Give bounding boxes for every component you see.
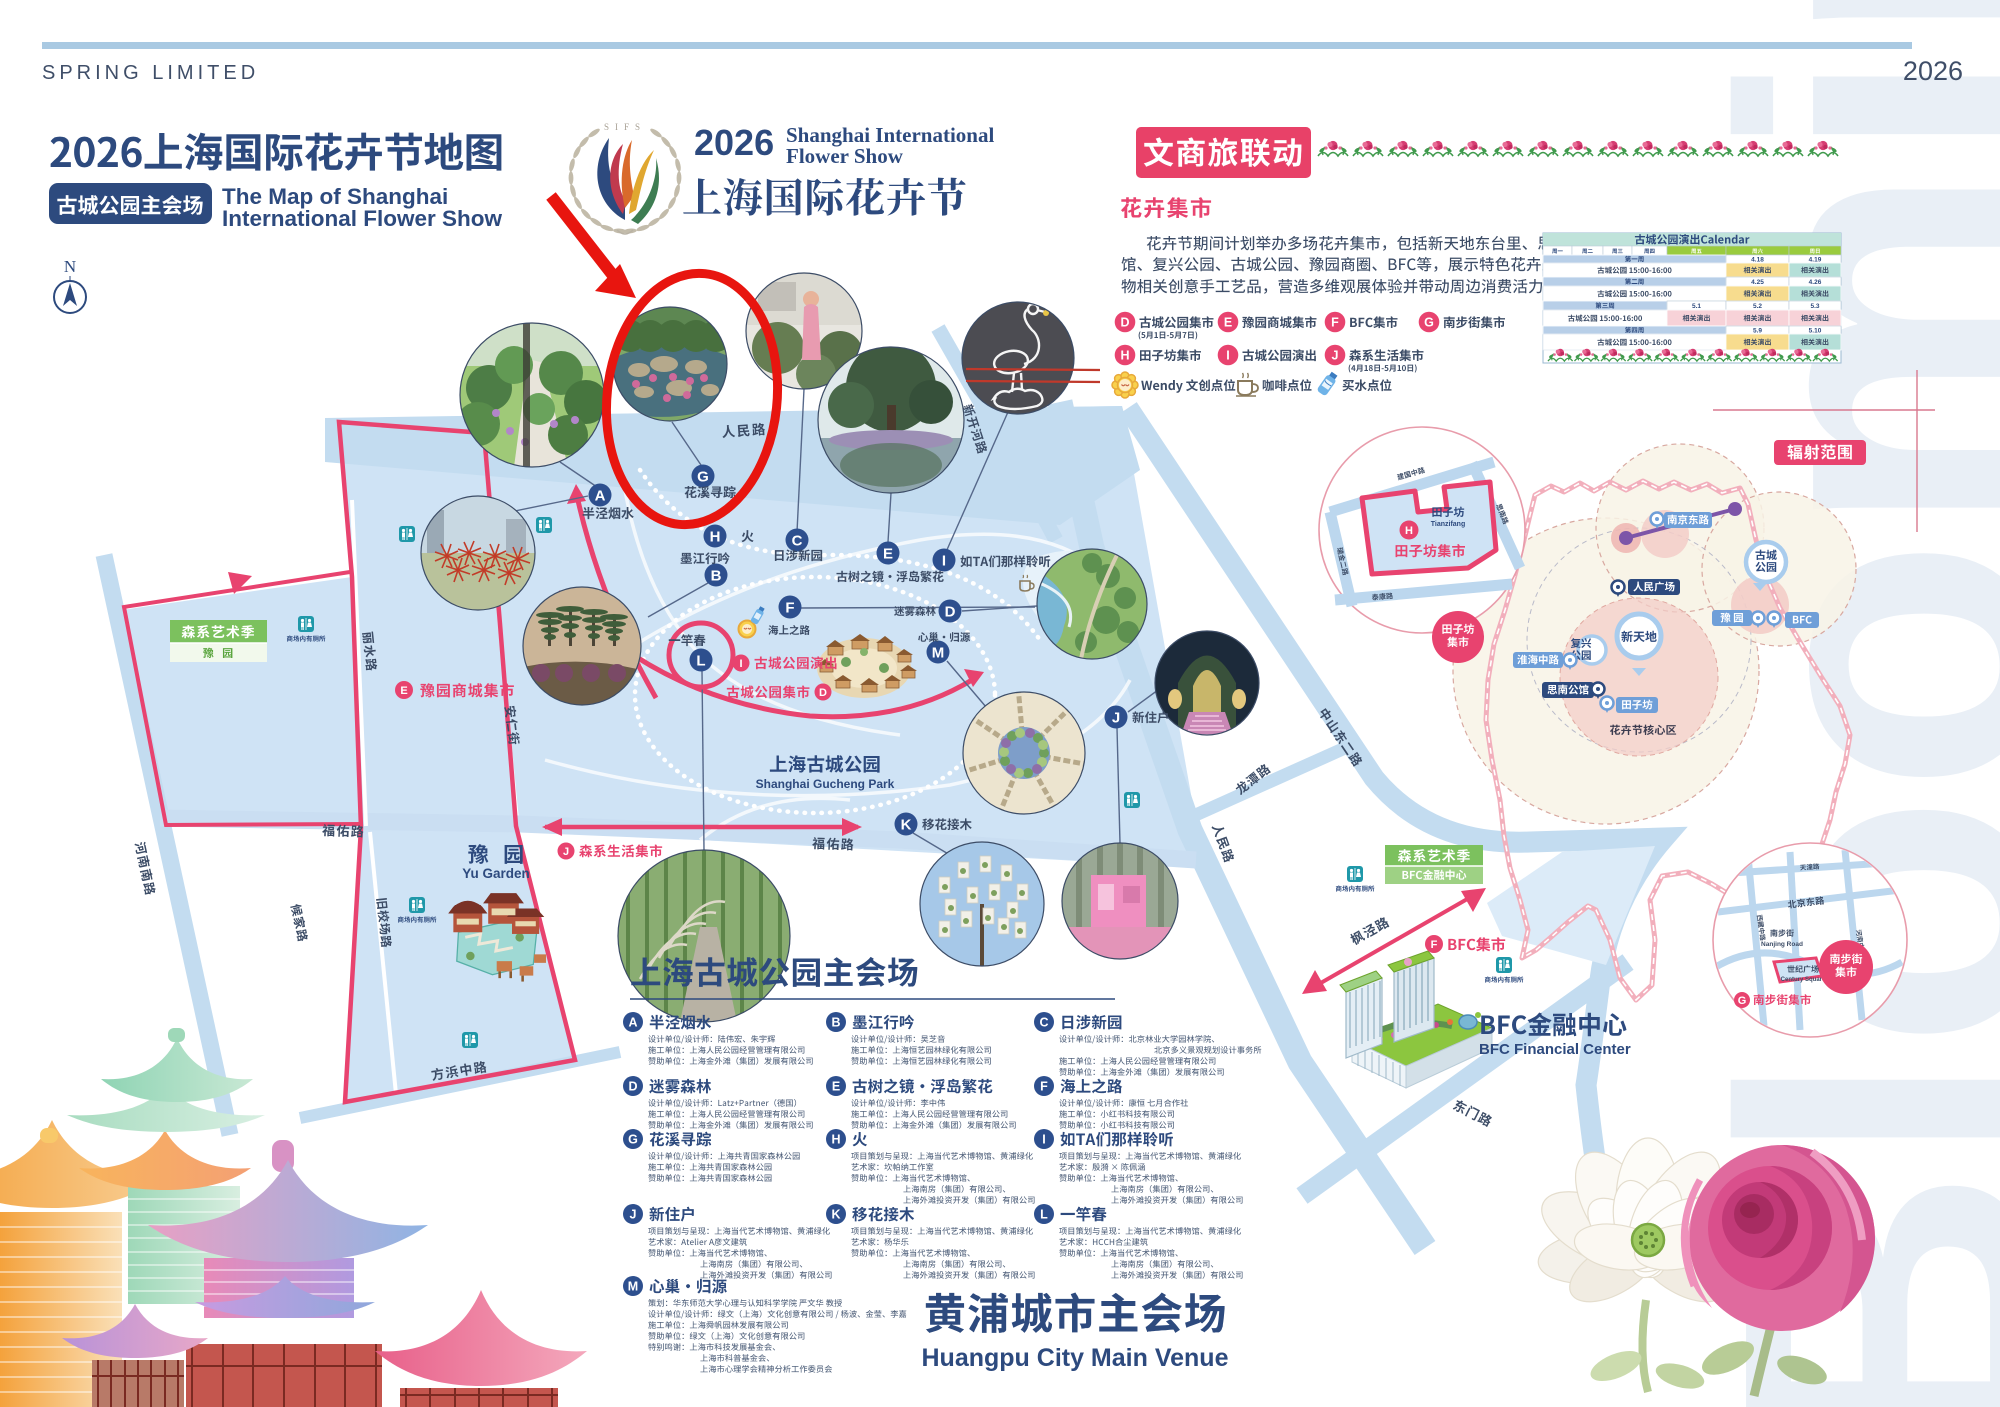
- svg-text:SPRING LIMITED: SPRING LIMITED: [42, 62, 259, 84]
- svg-text:I: I: [739, 658, 742, 670]
- svg-text:D: D: [819, 687, 827, 699]
- svg-text:D: D: [628, 1080, 637, 1094]
- svg-text:Huangpu City Main Venue: Huangpu City Main Venue: [922, 1344, 1229, 1372]
- svg-text:J: J: [563, 846, 569, 858]
- svg-text:B: B: [711, 568, 722, 585]
- svg-text:H: H: [1405, 525, 1413, 537]
- svg-text:K: K: [831, 1208, 840, 1222]
- svg-text:4.18: 4.18: [1751, 257, 1764, 264]
- svg-text:L: L: [696, 653, 705, 670]
- svg-text:Shanghai Gucheng Park: Shanghai Gucheng Park: [756, 777, 895, 791]
- svg-text:F: F: [1331, 316, 1339, 330]
- svg-text:F: F: [1040, 1080, 1048, 1094]
- svg-text:C: C: [792, 533, 803, 550]
- svg-text:Tianzifang: Tianzifang: [1431, 521, 1465, 528]
- svg-text:D: D: [945, 604, 956, 621]
- svg-text:I: I: [1042, 1133, 1045, 1147]
- svg-text:M: M: [932, 645, 945, 662]
- svg-text:J: J: [1332, 349, 1339, 363]
- svg-text:Flower Show: Flower Show: [786, 144, 904, 168]
- svg-text:E: E: [400, 685, 407, 697]
- svg-text:Yu Garden: Yu Garden: [462, 866, 530, 881]
- svg-text:SIFS: SIFS: [604, 122, 646, 132]
- svg-text:2026: 2026: [694, 122, 774, 163]
- svg-text:C: C: [1039, 1016, 1048, 1030]
- svg-text:G: G: [1424, 316, 1434, 330]
- svg-text:H: H: [710, 529, 721, 546]
- svg-text:I: I: [1226, 349, 1229, 363]
- svg-text:A: A: [628, 1016, 637, 1030]
- svg-text:5.9: 5.9: [1753, 328, 1762, 335]
- svg-text:A: A: [595, 488, 606, 505]
- svg-text:5.1: 5.1: [1692, 303, 1701, 310]
- svg-text:G: G: [697, 469, 709, 486]
- svg-text:G: G: [1738, 995, 1747, 1007]
- svg-text:2026: 2026: [1903, 56, 1963, 86]
- svg-text:4.26: 4.26: [1809, 279, 1822, 286]
- svg-text:Nanjing Road: Nanjing Road: [1761, 941, 1803, 948]
- svg-text:E: E: [1224, 316, 1232, 330]
- svg-text:F: F: [1431, 939, 1438, 951]
- svg-text:H: H: [831, 1133, 840, 1147]
- svg-text:D: D: [1120, 316, 1129, 330]
- svg-text:H: H: [1120, 349, 1129, 363]
- svg-text:L: L: [1040, 1208, 1048, 1222]
- svg-text:E: E: [883, 546, 893, 563]
- svg-text:4.25: 4.25: [1751, 279, 1764, 286]
- svg-text:N: N: [64, 257, 76, 276]
- svg-text:BFC Financial Center: BFC Financial Center: [1479, 1041, 1631, 1058]
- svg-text:5.2: 5.2: [1753, 303, 1762, 310]
- svg-text:Century Square: Century Square: [1781, 977, 1826, 983]
- svg-text:F: F: [785, 600, 794, 617]
- svg-text:E: E: [832, 1080, 840, 1094]
- svg-text:5.10: 5.10: [1809, 328, 1822, 335]
- svg-text:J: J: [1112, 710, 1120, 727]
- svg-text:G: G: [628, 1133, 638, 1147]
- svg-text:K: K: [901, 817, 912, 834]
- svg-text:4.19: 4.19: [1809, 257, 1822, 264]
- svg-text:J: J: [630, 1208, 637, 1222]
- svg-text:B: B: [831, 1016, 840, 1030]
- svg-text:I: I: [942, 553, 946, 570]
- svg-text:5.3: 5.3: [1810, 303, 1819, 310]
- svg-text:M: M: [628, 1280, 638, 1294]
- svg-text:International Flower Show: International Flower Show: [222, 206, 503, 231]
